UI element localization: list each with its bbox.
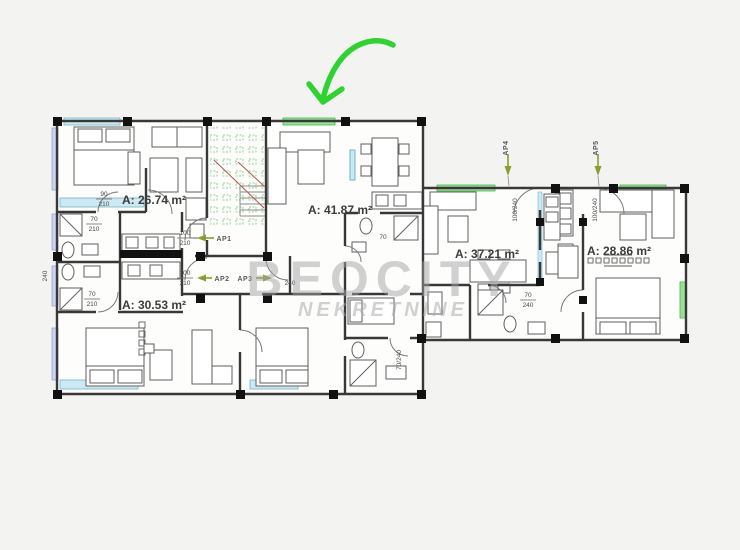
bed-icon xyxy=(74,127,134,185)
chair-icon xyxy=(144,344,154,353)
svg-text:240: 240 xyxy=(523,302,534,309)
dim-ap5-door: 100/240 xyxy=(592,198,599,222)
tv-panel xyxy=(350,150,355,180)
svg-text:70: 70 xyxy=(90,216,98,223)
armchair-icon xyxy=(150,158,178,192)
dining-table-icon xyxy=(150,350,172,380)
svg-text:100: 100 xyxy=(180,270,191,277)
wardrobe-icon xyxy=(128,152,140,184)
bed-icon xyxy=(256,328,308,386)
area-label-30-53: A: 30.53 m² xyxy=(122,298,186,312)
desk-icon xyxy=(558,246,578,278)
svg-text:AP5: AP5 xyxy=(593,140,600,155)
kitchen2-counter xyxy=(122,262,180,279)
area-label-28-86: A: 28.86 m² xyxy=(587,244,651,258)
table-icon xyxy=(186,198,206,220)
watermark-subtitle: NEKRETNINE xyxy=(298,299,468,321)
svg-text:AP1: AP1 xyxy=(216,236,231,243)
floorplan-image: 90 210 70 210 100 210 100 210 240 70 210… xyxy=(0,0,740,550)
kitchen1-counter xyxy=(122,234,180,251)
dim-70: 70 xyxy=(379,234,387,241)
dim-se-bath: 70/240 xyxy=(396,350,403,370)
svg-text:210: 210 xyxy=(89,226,100,233)
svg-text:100: 100 xyxy=(180,230,191,237)
stairwell xyxy=(210,126,266,230)
sofa-icon xyxy=(152,127,202,147)
bed-icon xyxy=(596,278,660,334)
svg-text:210: 210 xyxy=(180,240,191,247)
desk-icon xyxy=(186,158,202,192)
marker-ap5: AP5 xyxy=(593,140,602,186)
entrance-arrow-icon xyxy=(309,41,393,102)
chair-icon xyxy=(190,224,204,238)
dim-ap4-door: 100/240 xyxy=(512,198,519,222)
coffee-table-icon xyxy=(620,214,646,240)
svg-text:90: 90 xyxy=(100,191,108,198)
coffee-table-icon xyxy=(298,150,324,184)
area-label-26-74: A: 26.74 m² xyxy=(122,193,186,207)
bed-icon xyxy=(86,328,144,386)
svg-text:AP2: AP2 xyxy=(214,276,229,283)
svg-text:210: 210 xyxy=(99,201,110,208)
svg-text:210: 210 xyxy=(87,301,98,308)
marker-ap4: AP4 xyxy=(503,140,512,186)
svg-text:70: 70 xyxy=(88,291,96,298)
floorplan-svg: 90 210 70 210 100 210 100 210 240 70 210… xyxy=(0,0,740,550)
svg-text:210: 210 xyxy=(180,280,191,287)
svg-text:70: 70 xyxy=(524,292,532,299)
armchair-icon xyxy=(448,216,468,242)
dim-left-240: 240 xyxy=(42,270,49,281)
area-label-41-87: A: 41.87 m² xyxy=(308,203,372,217)
svg-text:AP4: AP4 xyxy=(503,140,510,155)
kitchen-counter xyxy=(372,192,422,209)
